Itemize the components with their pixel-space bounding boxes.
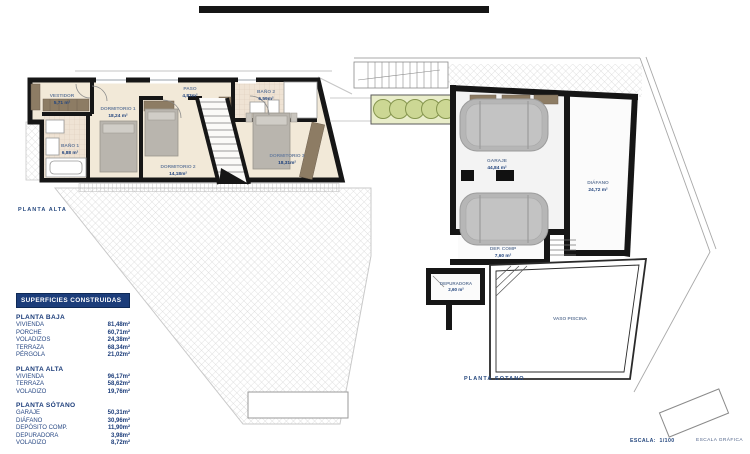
- row-value: 21,02m²: [108, 352, 130, 360]
- room-area: 18,24 m²: [108, 113, 128, 119]
- room-area: 4,83m²: [182, 93, 198, 99]
- surfaces-row: VOLADIZOS24,38m²: [16, 337, 130, 345]
- surfaces-row: GARAJE50,31m²: [16, 410, 130, 418]
- row-label: VOLADIZO: [16, 440, 46, 448]
- graphic-scale-box: [659, 389, 728, 437]
- scale-caption: ESCALA:: [630, 438, 656, 444]
- room-area: 18,31m²: [278, 160, 296, 166]
- section-heading: PLANTA ALTA: [16, 366, 130, 373]
- room-label: DEPURADORA: [440, 281, 473, 286]
- row-value: 19,76m²: [108, 389, 130, 397]
- row-label: DEPÓSITO COMP.: [16, 425, 67, 433]
- row-label: DIÁFANO: [16, 418, 42, 426]
- room-label: DORMITORIO 1: [100, 106, 135, 112]
- room-label: VESTIDOR: [50, 93, 75, 99]
- row-value: 58,62m²: [108, 381, 130, 389]
- row-label: PÉRGOLA: [16, 352, 45, 360]
- room-label: BAÑO 1: [61, 142, 79, 149]
- surfaces-row: VOLADIZO19,76m²: [16, 389, 130, 397]
- surfaces-row: PORCHE60,71m²: [16, 330, 130, 338]
- room-area: 5,71 m²: [54, 100, 71, 106]
- row-label: TERRAZA: [16, 381, 44, 389]
- room-label: DORMITORIO 3: [269, 153, 304, 159]
- blueprint-canvas: VESTIDOR 5,71 m² DORMITORIO 1 18,24 m² B…: [0, 0, 750, 454]
- surfaces-row: VOLADIZO8,72m²: [16, 440, 130, 448]
- scale-value: 1/100: [660, 438, 675, 444]
- surfaces-section: PLANTA BAJAVIVIENDA81,48m²PORCHE60,71m²V…: [16, 314, 130, 360]
- surfaces-row: DEPURADORA3,98m²: [16, 433, 130, 441]
- room-area: 6,88 m²: [62, 150, 79, 156]
- row-value: 68,34m²: [108, 345, 130, 353]
- surfaces-row: VIVIENDA96,17m²: [16, 374, 130, 382]
- row-value: 8,72m²: [111, 440, 130, 448]
- surfaces-row: DIÁFANO30,96m²: [16, 418, 130, 426]
- row-label: VOLADIZO: [16, 389, 46, 397]
- room-area: 7,60 m²: [495, 253, 512, 259]
- surfaces-row: VIVIENDA81,48m²: [16, 322, 130, 330]
- room-area: 14,18m²: [169, 171, 187, 177]
- surfaces-section: PLANTA ALTAVIVIENDA96,17m²TERRAZA58,62m²…: [16, 366, 130, 397]
- row-value: 50,31m²: [108, 410, 130, 418]
- surfaces-table: SUPERFICIES CONSTRUIDAS PLANTA BAJAVIVIE…: [16, 293, 130, 448]
- room-label: GARAJE: [487, 158, 508, 164]
- surfaces-row: TERRAZA58,62m²: [16, 381, 130, 389]
- room-label: PASO: [183, 86, 197, 92]
- room-area: 2,60 m²: [448, 287, 464, 292]
- room-label: DORMITORIO 2: [160, 164, 195, 170]
- surfaces-section: PLANTA SÓTANOGARAJE50,31m²DIÁFANO30,96m²…: [16, 402, 130, 448]
- room-label: DIÁFANO: [587, 179, 609, 186]
- scale-label: ESCALA: 1/100: [630, 438, 675, 444]
- room-label: VASO PISCINA: [553, 316, 588, 322]
- surfaces-row: PÉRGOLA21,02m²: [16, 352, 130, 360]
- exterior-stair: [354, 62, 448, 88]
- room-label: DEP. COMP: [490, 246, 517, 252]
- row-label: VIVIENDA: [16, 322, 44, 330]
- room-area: 6,59m²: [258, 96, 274, 102]
- row-label: TERRAZA: [16, 345, 44, 353]
- row-label: DEPURADORA: [16, 433, 58, 441]
- row-value: 81,48m²: [108, 322, 130, 330]
- room-area: 44,84 m²: [487, 165, 507, 171]
- row-value: 30,96m²: [108, 418, 130, 426]
- row-label: VOLADIZOS: [16, 337, 50, 345]
- surfaces-row: TERRAZA68,34m²: [16, 345, 130, 353]
- balcony-tick-strip: [79, 184, 339, 192]
- graphic-scale-label: ESCALA GRÁFICA: [696, 438, 743, 443]
- section-cut-bar: [199, 6, 489, 13]
- side-deck: [26, 122, 41, 180]
- left-plan-title: PLANTA ALTA: [18, 207, 67, 213]
- room-label: BAÑO 2: [257, 88, 275, 95]
- surfaces-table-sections: PLANTA BAJAVIVIENDA81,48m²PORCHE60,71m²V…: [16, 314, 130, 448]
- right-floor-plan: GARAJE 44,84 m² DIÁFANO 24,72 m² DEP. CO…: [330, 57, 729, 437]
- pillar: [496, 170, 514, 181]
- surfaces-table-title: SUPERFICIES CONSTRUIDAS: [16, 293, 130, 308]
- pillar: [461, 170, 474, 181]
- section-heading: PLANTA SÓTANO: [16, 402, 130, 409]
- row-value: 11,90m²: [108, 425, 130, 433]
- row-value: 24,38m²: [108, 337, 130, 345]
- row-label: GARAJE: [16, 410, 40, 418]
- row-value: 60,71m²: [108, 330, 130, 338]
- section-heading: PLANTA BAJA: [16, 314, 130, 321]
- row-label: VIVIENDA: [16, 374, 44, 382]
- room-area: 24,72 m²: [588, 187, 608, 193]
- deck-pool: [248, 392, 348, 418]
- row-value: 96,17m²: [108, 374, 130, 382]
- row-label: PORCHE: [16, 330, 42, 338]
- row-value: 3,98m²: [111, 433, 130, 441]
- right-plan-title: PLANTA SOTANO: [464, 376, 525, 382]
- surfaces-row: DEPÓSITO COMP.11,90m²: [16, 425, 130, 433]
- planter-icon: [330, 95, 456, 124]
